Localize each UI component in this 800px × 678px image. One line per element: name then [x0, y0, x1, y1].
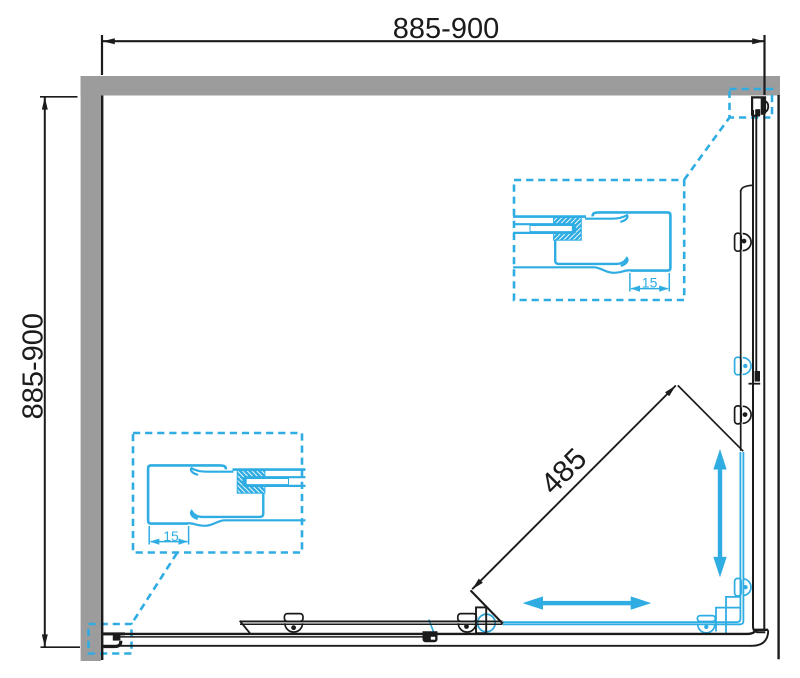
svg-text:885-900: 885-900	[18, 313, 50, 419]
svg-text:15: 15	[163, 528, 179, 544]
svg-text:885-900: 885-900	[393, 13, 499, 45]
svg-text:485: 485	[535, 442, 594, 501]
svg-text:15: 15	[642, 274, 658, 290]
